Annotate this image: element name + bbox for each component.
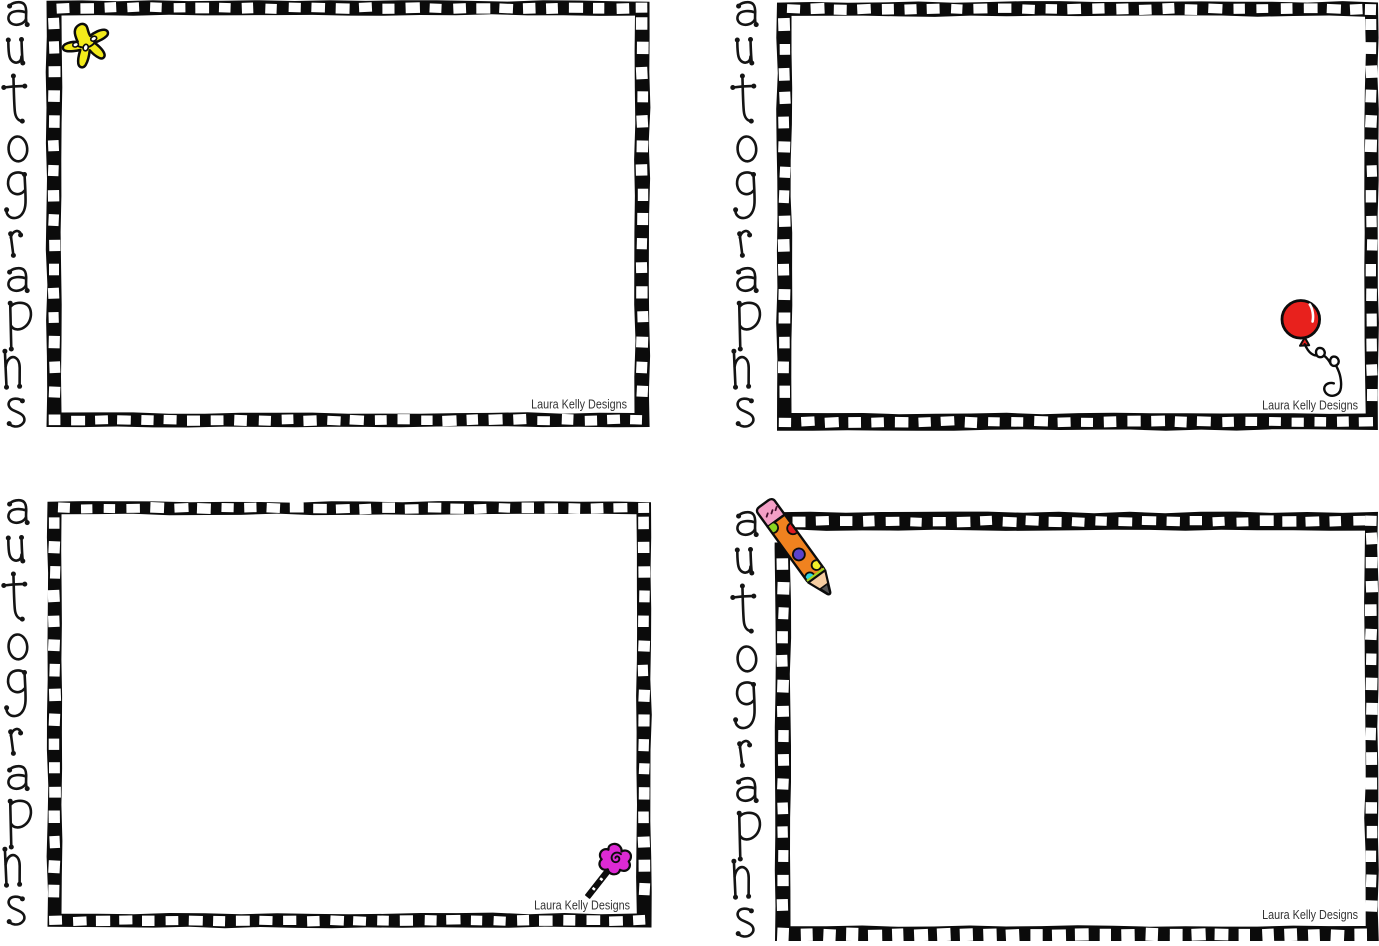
svg-text:Laura Kelly Designs: Laura Kelly Designs (534, 898, 630, 913)
svg-text:Laura Kelly Designs: Laura Kelly Designs (1262, 398, 1358, 413)
svg-text:Laura Kelly Designs: Laura Kelly Designs (531, 397, 627, 412)
svg-text:Laura Kelly Designs: Laura Kelly Designs (1262, 907, 1358, 922)
